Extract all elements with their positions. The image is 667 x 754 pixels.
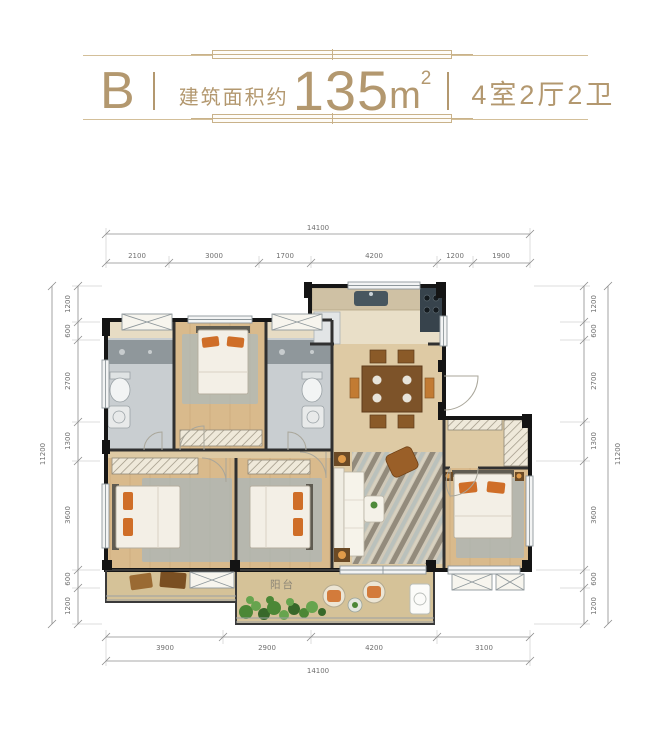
- bedroom2-bed: [182, 326, 258, 404]
- coffee-table: [364, 496, 384, 522]
- svg-text:3000: 3000: [205, 252, 223, 260]
- washer: [410, 584, 430, 614]
- svg-text:2900: 2900: [258, 644, 276, 652]
- svg-text:2100: 2100: [128, 252, 146, 260]
- dim-ticks-top: [102, 230, 534, 267]
- svg-text:1200: 1200: [64, 295, 72, 313]
- floor-plan: 阳台: [0, 0, 667, 754]
- svg-text:1200: 1200: [590, 295, 598, 313]
- svg-text:1200: 1200: [446, 252, 464, 260]
- svg-text:600: 600: [64, 572, 72, 585]
- svg-text:1700: 1700: [276, 252, 294, 260]
- svg-text:1200: 1200: [590, 597, 598, 615]
- dim-bottom-total: 14100: [307, 667, 329, 675]
- entry-door: [444, 376, 478, 410]
- bedroom4-bed: [236, 478, 322, 562]
- svg-text:4200: 4200: [365, 252, 383, 260]
- balcony-label: 阳台: [270, 578, 295, 591]
- svg-text:2700: 2700: [590, 372, 598, 390]
- svg-text:3600: 3600: [64, 506, 72, 524]
- svg-text:600: 600: [64, 324, 72, 337]
- svg-text:3600: 3600: [590, 506, 598, 524]
- svg-text:600: 600: [590, 572, 598, 585]
- dim-left-total: 11200: [39, 443, 47, 465]
- dim-right-total: 11200: [614, 443, 622, 465]
- svg-text:600: 600: [590, 324, 598, 337]
- svg-text:4200: 4200: [365, 644, 383, 652]
- sofa: [344, 472, 364, 556]
- svg-text:1300: 1300: [590, 432, 598, 450]
- svg-text:3900: 3900: [156, 644, 174, 652]
- master-bed: [444, 470, 524, 558]
- svg-text:2700: 2700: [64, 372, 72, 390]
- dim-top-total: 14100: [307, 224, 329, 232]
- svg-text:3100: 3100: [475, 644, 493, 652]
- dining-table: [362, 366, 422, 412]
- svg-text:1200: 1200: [64, 597, 72, 615]
- page-background: B 建筑面积约 135 m 2 4室2厅2卫: [0, 0, 667, 754]
- svg-text:1900: 1900: [492, 252, 510, 260]
- svg-text:1300: 1300: [64, 432, 72, 450]
